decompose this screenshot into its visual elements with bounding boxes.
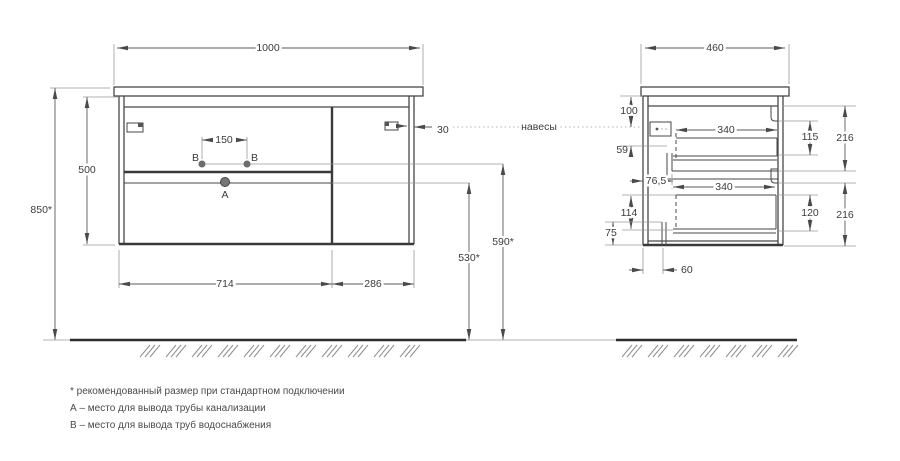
point-a-marker bbox=[221, 178, 230, 187]
front-countertop bbox=[114, 87, 423, 96]
floor bbox=[43, 340, 798, 357]
dim-hole-spacing: 150 bbox=[202, 134, 247, 146]
note-point-a: А – место для вывода трубы канализации bbox=[70, 402, 266, 414]
dim-total-height: 850* bbox=[30, 88, 110, 340]
side-countertop bbox=[641, 87, 789, 96]
hanger-bracket-icon-right bbox=[385, 122, 407, 130]
dim-label-460: 460 bbox=[706, 42, 724, 54]
point-a-label: A bbox=[221, 189, 228, 201]
dim-right-extensions bbox=[778, 106, 856, 246]
dim-label-340-bottom: 340 bbox=[715, 181, 733, 193]
dim-inner-top-115: 115 bbox=[802, 121, 819, 155]
dim-front-top-216: 216 bbox=[836, 106, 854, 171]
dim-sections: 714 286 bbox=[119, 250, 414, 290]
hangers-callout: навесы bbox=[453, 121, 643, 133]
dim-label-500: 500 bbox=[78, 164, 96, 176]
point-b-marker-left bbox=[199, 161, 206, 168]
dim-label-60: 60 bbox=[681, 264, 693, 276]
floor-hatching-front bbox=[140, 345, 420, 357]
dim-label-590: 590* bbox=[492, 236, 514, 248]
dim-label-115: 115 bbox=[802, 131, 819, 143]
dim-label-114: 114 bbox=[621, 207, 638, 219]
note-asterisk: * рекомендованный размер при стандартном… bbox=[70, 386, 345, 397]
note-point-b: В – место для вывода труб водоснабжения bbox=[70, 419, 271, 431]
dim-label-30: 30 bbox=[437, 124, 449, 136]
dim-hanger-offset-59: 59 bbox=[616, 118, 667, 156]
dim-label-216-top: 216 bbox=[836, 132, 854, 144]
dim-front-bottom-216: 216 bbox=[836, 183, 854, 246]
dim-label-530: 530* bbox=[458, 252, 480, 264]
dim-depth-460: 460 bbox=[641, 42, 789, 84]
dim-drawer-depth-bottom: 340 bbox=[673, 181, 775, 193]
dim-back-inset-60: 60 bbox=[629, 248, 693, 276]
dim-supply-height: 590* bbox=[492, 164, 514, 340]
dim-label-340-top: 340 bbox=[717, 124, 735, 136]
dim-drawer-depth-top: 340 bbox=[676, 124, 777, 136]
technical-drawing: B B A 150 1000 850* 500 bbox=[0, 0, 900, 461]
side-top-drawer bbox=[667, 133, 778, 179]
dim-label-120: 120 bbox=[801, 207, 819, 219]
point-b-label-right: B bbox=[251, 152, 258, 164]
point-b-label-left: B bbox=[192, 152, 199, 164]
hanger-bracket-icon-left bbox=[127, 123, 143, 132]
dim-label-76-5: 76,5 bbox=[646, 175, 667, 187]
side-view: 460 100 59 76,5 114 bbox=[605, 42, 856, 276]
dim-body-height: 500 bbox=[78, 97, 119, 245]
hangers-label: навесы bbox=[521, 121, 557, 133]
floor-hatching-side bbox=[622, 345, 798, 357]
dim-width-1000: 1000 bbox=[114, 42, 423, 85]
dim-label-75: 75 bbox=[605, 227, 617, 239]
dim-label-286: 286 bbox=[364, 278, 382, 290]
dim-label-100: 100 bbox=[620, 105, 638, 117]
dim-label-150: 150 bbox=[215, 134, 233, 146]
dim-wall-gap: 30 bbox=[414, 124, 449, 136]
wall-hanger-icon bbox=[650, 122, 671, 136]
front-view: B B A 150 1000 850* 500 bbox=[30, 42, 513, 340]
front-cabinet-body bbox=[119, 96, 414, 244]
point-b-marker-right bbox=[244, 161, 251, 168]
notes: * рекомендованный размер при стандартном… bbox=[70, 386, 345, 431]
dim-label-714: 714 bbox=[216, 278, 234, 290]
dim-label-59: 59 bbox=[616, 144, 628, 156]
dim-label-1000: 1000 bbox=[256, 42, 280, 54]
dim-top-offset-100: 100 bbox=[620, 96, 643, 126]
dim-label-850: 850* bbox=[30, 204, 52, 216]
dim-drain-height: 530* bbox=[458, 183, 480, 340]
side-bottom-drawer bbox=[662, 195, 776, 245]
dim-label-216-bottom: 216 bbox=[836, 209, 854, 221]
dim-inner-bottom-120: 120 bbox=[801, 195, 819, 231]
side-top-rail bbox=[771, 106, 778, 121]
